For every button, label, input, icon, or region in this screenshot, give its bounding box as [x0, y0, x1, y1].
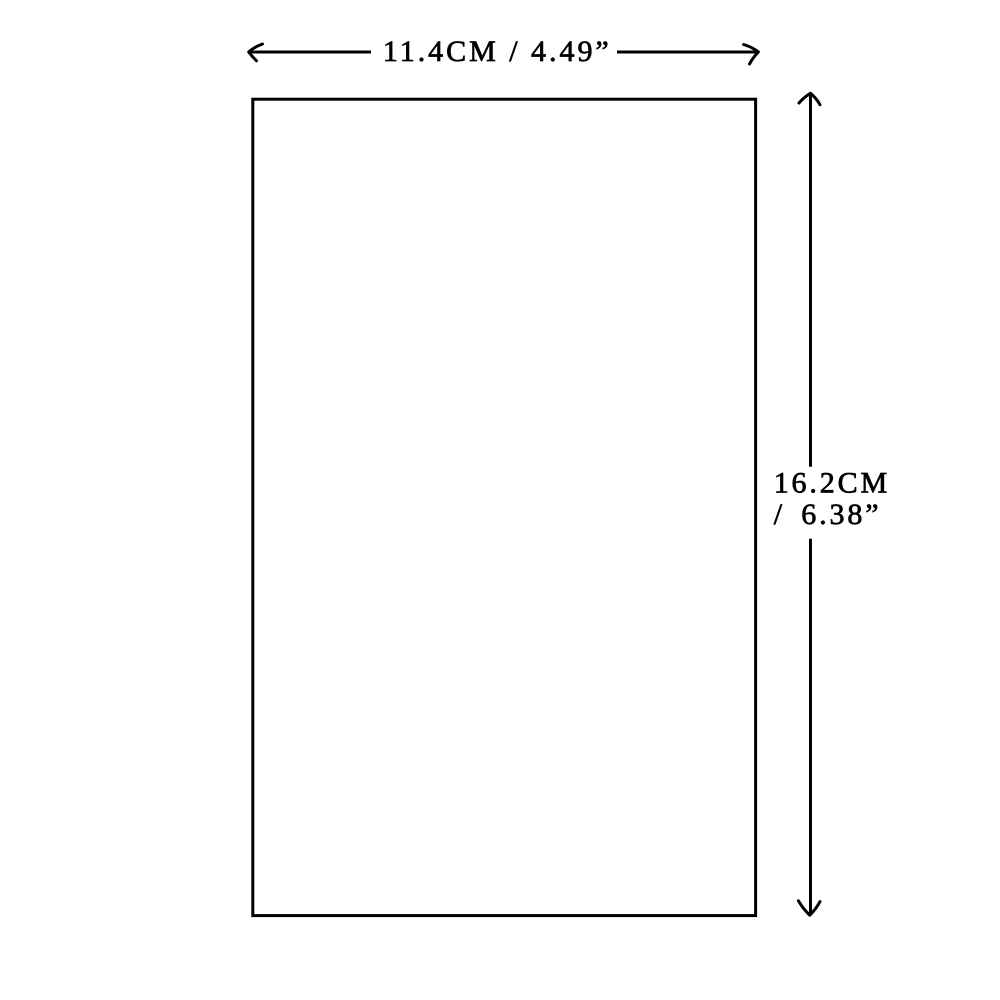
svg-text:11.4CM / 4.49”: 11.4CM / 4.49”: [383, 34, 612, 68]
svg-text:/ 6.38”: / 6.38”: [774, 497, 882, 531]
svg-text:16.2CM: 16.2CM: [774, 465, 890, 499]
